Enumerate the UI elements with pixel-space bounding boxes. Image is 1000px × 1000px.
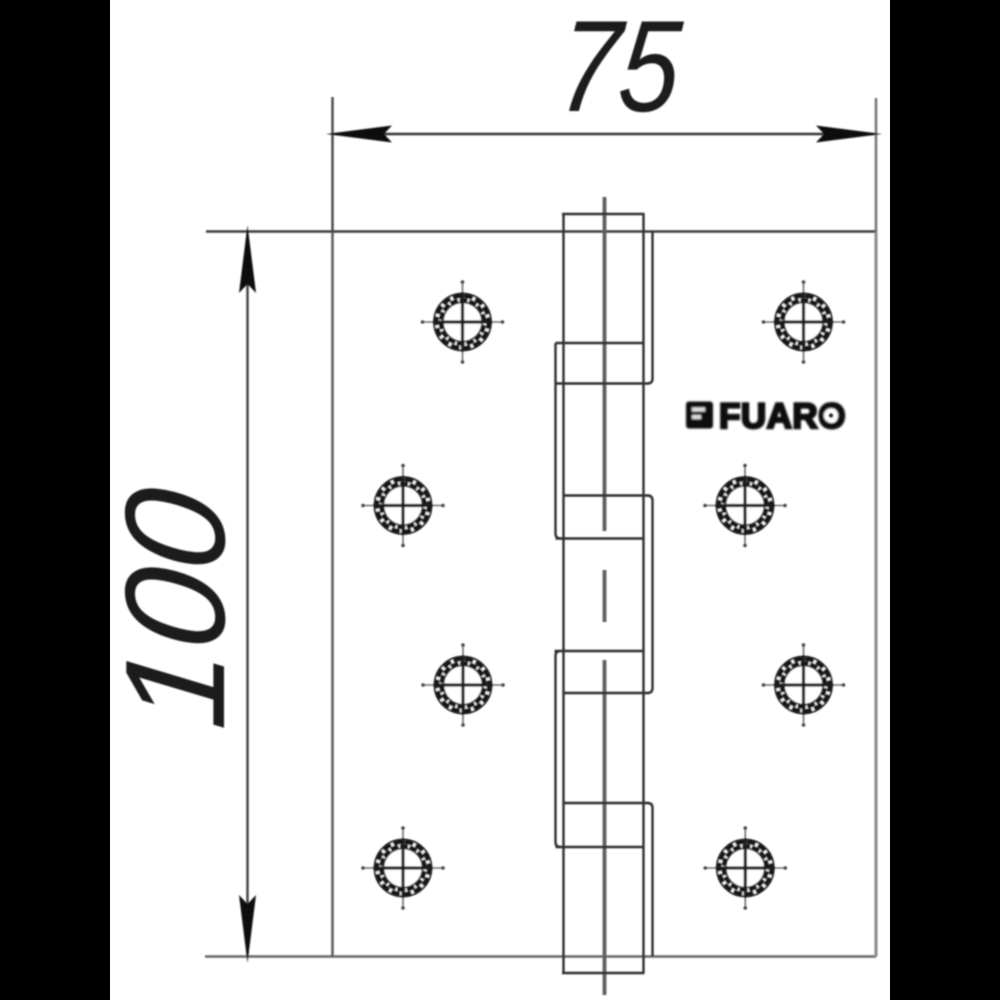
svg-text:75: 75 bbox=[554, 0, 687, 139]
svg-text:FUARO: FUARO bbox=[719, 397, 846, 436]
svg-text:100: 100 bbox=[96, 481, 255, 735]
